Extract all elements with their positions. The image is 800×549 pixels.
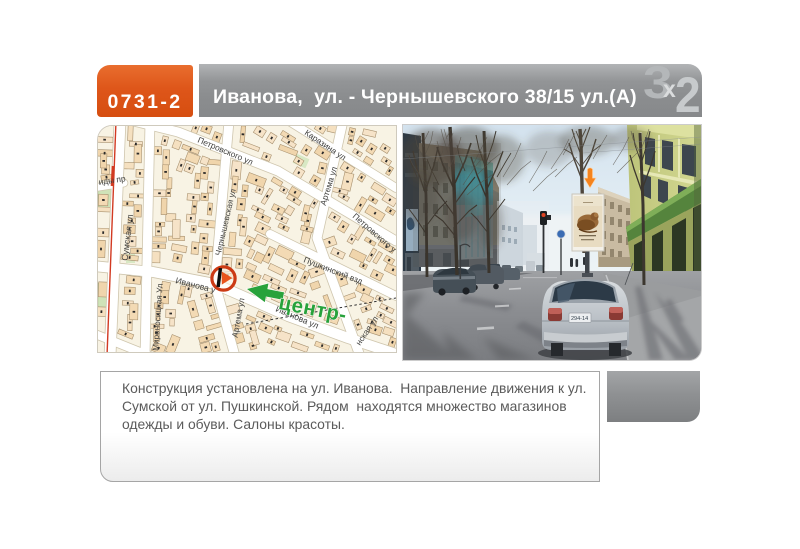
svg-text:294-14: 294-14 [571, 316, 588, 322]
